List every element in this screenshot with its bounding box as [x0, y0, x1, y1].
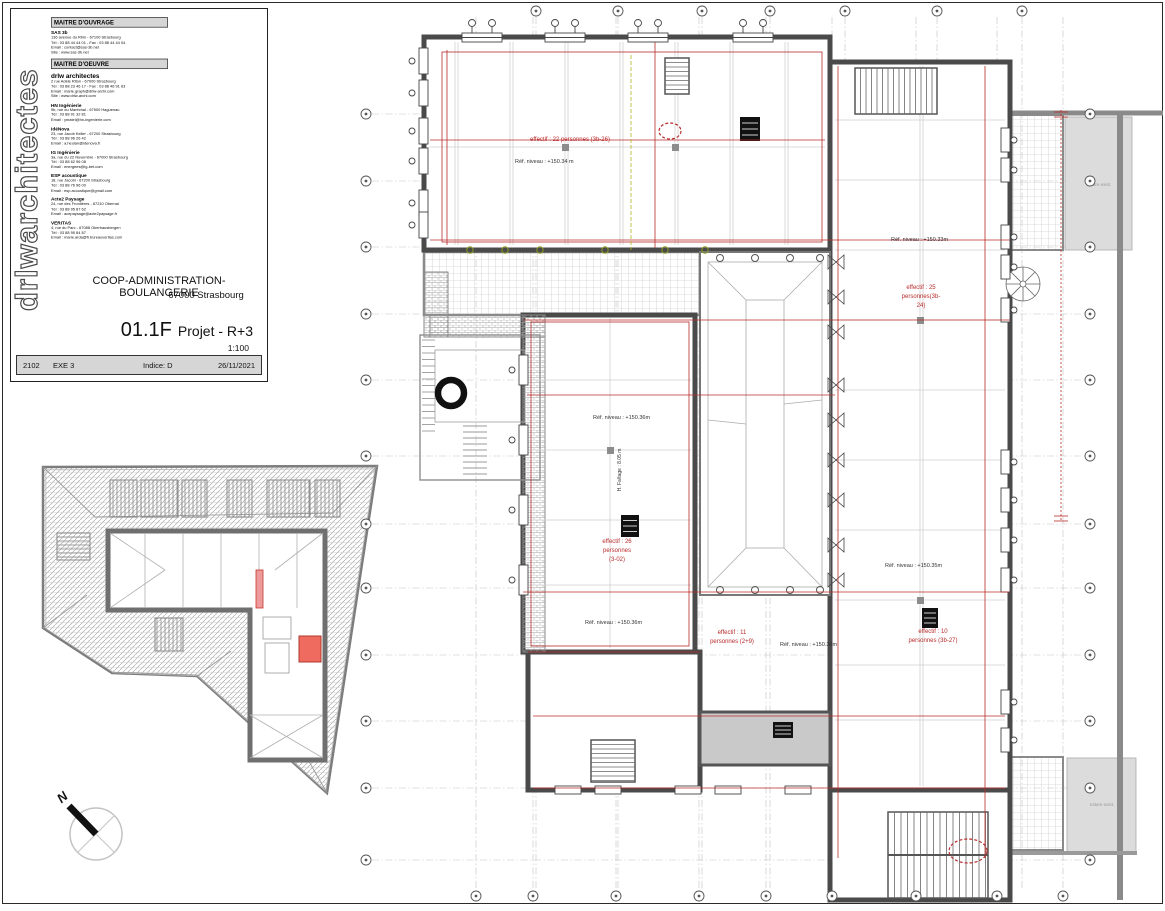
svg-text:effectif : 22 personnes (3b-26: effectif : 22 personnes (3b-26) — [530, 137, 610, 143]
stair — [665, 58, 689, 94]
spiral-stair — [1006, 267, 1040, 301]
maitre-ouvrage-header: MAITRE D'OUVRAGE — [51, 17, 168, 27]
contact-entry-moe-4: ESP acoustique 18, rue Jacobi - 67200 St… — [51, 174, 203, 194]
sheet-name: Projet - R+3 — [178, 323, 253, 339]
svg-text:personnes(3b-: personnes(3b- — [902, 294, 941, 300]
contact-name: drlw architectes — [51, 72, 203, 79]
contact-entry-moe-3: IG Ingénierie 3a, rue du 22 Novembre - 6… — [51, 150, 203, 170]
contact-entry-moe-0: drlw architectes 2 rue Adèle Riton - 670… — [51, 72, 203, 99]
terrace-east — [1005, 115, 1063, 250]
svg-text:Réf. niveau : +150.36m: Réf. niveau : +150.36m — [593, 415, 650, 421]
phase: EXE 3 — [53, 361, 143, 370]
contact-entry-mo-0: SAS 3b 136 avenue du Rhin - 67100 Strasb… — [51, 31, 203, 56]
contact-line: Email : a.heulan@idenova.fr — [51, 141, 203, 146]
svg-text:H. Faîtage : 8.05 m: H. Faîtage : 8.05 m — [617, 449, 623, 492]
sheet-scale: 1:100 — [228, 343, 249, 353]
contact-line: Email : marie.arda@fr.bureauveritas.com — [51, 236, 203, 241]
stair — [591, 740, 635, 782]
svg-text:Réf. niveau : +150.34 m: Réf. niveau : +150.34 m — [515, 159, 574, 165]
svg-text:Réf. niveau : +150.33m: Réf. niveau : +150.33m — [891, 237, 948, 243]
north-needle — [69, 806, 96, 834]
indice: Indice: D — [143, 361, 215, 370]
duct-ring — [438, 380, 464, 406]
sheet-number: 01.1F — [121, 319, 172, 342]
svg-text:toiture exist.: toiture exist. — [1090, 802, 1114, 807]
north-arrow-svg: N — [52, 786, 132, 870]
contact-entry-moe-1: HN Ingénierie 9b, rue du Maréchal - 6750… — [51, 103, 203, 123]
title-block-footer: 2102 EXE 3 Indice: D 26/11/2021 — [16, 355, 262, 375]
svg-text:effectif : 26: effectif : 26 — [602, 539, 632, 545]
svg-text:Réf. niveau : +150.35m: Réf. niveau : +150.35m — [885, 563, 942, 569]
svg-text:effectif : 10: effectif : 10 — [918, 629, 948, 635]
svg-text:Réf. niveau : +150.36m: Réf. niveau : +150.36m — [780, 642, 837, 648]
sheet-id-line: 01.1F Projet - R+3 — [121, 319, 253, 342]
highlight-area — [299, 636, 321, 662]
stair — [855, 68, 937, 114]
terrace-southeast — [1006, 757, 1063, 850]
terrace-north — [424, 252, 700, 315]
north-arrow: N — [52, 786, 132, 870]
contact-line: Site : www.sas-3b.net — [51, 50, 203, 55]
floor-plan-r3: effectif : 22 personnes (3b-26)Réf. nive… — [355, 0, 1165, 906]
svg-text:personnes: personnes — [603, 548, 631, 554]
north-label: N — [54, 788, 71, 806]
contact-line: Email : ymatel@hn-ingenierie.com — [51, 118, 203, 123]
floor-plan-svg: effectif : 22 personnes (3b-26)Réf. nive… — [355, 0, 1165, 906]
svg-text:(3-02): (3-02) — [609, 557, 625, 563]
contacts-list: MAITRE D'OUVRAGE SAS 3b 136 avenue du Rh… — [51, 15, 203, 244]
contact-entry-moe-6: VERITAS 4, rue du Parc - 67088 Oberhausb… — [51, 221, 203, 241]
job-number: 2102 — [23, 361, 53, 370]
contact-line: Email : acepaysage@acte2paysage.fr — [51, 212, 203, 217]
svg-text:Réf. niveau : +150.36m: Réf. niveau : +150.36m — [585, 620, 642, 626]
svg-text:24): 24) — [917, 303, 926, 309]
svg-text:personnes (2+9): personnes (2+9) — [710, 639, 754, 645]
maitre-oeuvre-header: MAITRE D'OEUVRE — [51, 59, 168, 69]
date: 26/11/2021 — [215, 361, 255, 370]
title-block: drlwarchitectes MAITRE D'OUVRAGE SAS 3b … — [10, 8, 268, 382]
key-plan-roof-overview — [35, 455, 390, 805]
drawing-sheet: drlwarchitectes MAITRE D'OUVRAGE SAS 3b … — [0, 0, 1165, 906]
contact-line: Email : energees@ig-bet.com — [51, 165, 203, 170]
contact-entry-moe-5: Acte2 Paysage 24, rue des Frontières - 6… — [51, 197, 203, 217]
contact-line: Site : www.drlw-archi.com — [51, 94, 203, 99]
atrium-roof — [700, 252, 830, 595]
highlight-strip — [256, 570, 263, 608]
svg-text:effectif : 11: effectif : 11 — [718, 630, 747, 636]
architect-logo: drlwarchitectes — [9, 11, 51, 311]
technical-room — [700, 712, 830, 765]
contact-line: Email : esp.acoustique@gmail.com — [51, 189, 203, 194]
svg-text:personnes (3b-27): personnes (3b-27) — [908, 638, 957, 644]
svg-text:effectif : 25: effectif : 25 — [906, 285, 936, 291]
key-plan-svg — [35, 455, 390, 805]
project-city: 67000 Strasbourg — [151, 290, 261, 301]
contact-entry-moe-2: IdéNova 23, rue Jacob Keller - 67200 Str… — [51, 127, 203, 147]
